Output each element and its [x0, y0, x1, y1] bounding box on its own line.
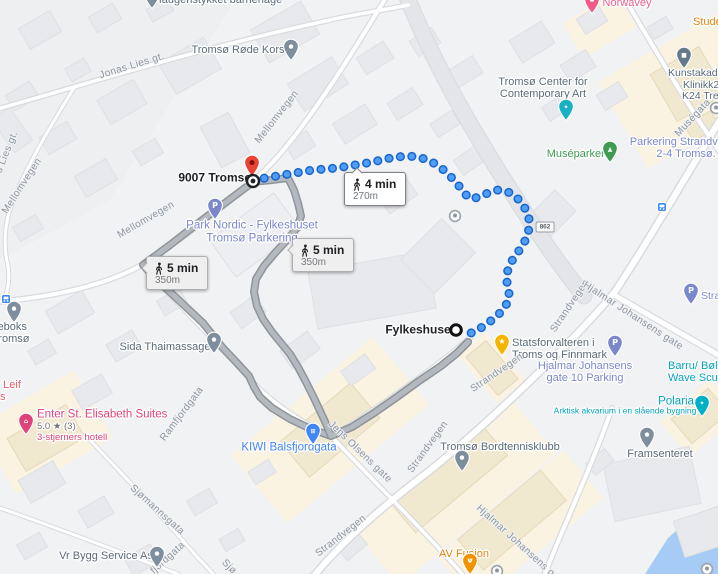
badge-pointer — [141, 262, 152, 273]
route-duration: 5 min — [313, 243, 344, 257]
route-distance: 350m — [300, 257, 344, 268]
route-duration: 4 min — [365, 177, 396, 191]
walking-icon — [300, 244, 310, 257]
route-distance: 270m — [352, 191, 396, 202]
selected-route-badge[interactable]: 4 min270m — [344, 172, 406, 206]
alt-route-badge-1[interactable]: 5 min350m — [292, 238, 354, 272]
walking-icon — [154, 262, 164, 275]
alt-route-badge-2[interactable]: 5 min350m — [146, 256, 208, 290]
map-canvas[interactable]: Haugenstykket barnehageTromsø Røde KorsN… — [0, 0, 718, 574]
walking-icon — [352, 178, 362, 191]
route-badges-layer: 4 min270m5 min350m5 min350m — [0, 0, 718, 574]
badge-pointer — [287, 244, 298, 255]
route-distance: 350m — [154, 275, 198, 286]
route-duration: 5 min — [167, 261, 198, 275]
